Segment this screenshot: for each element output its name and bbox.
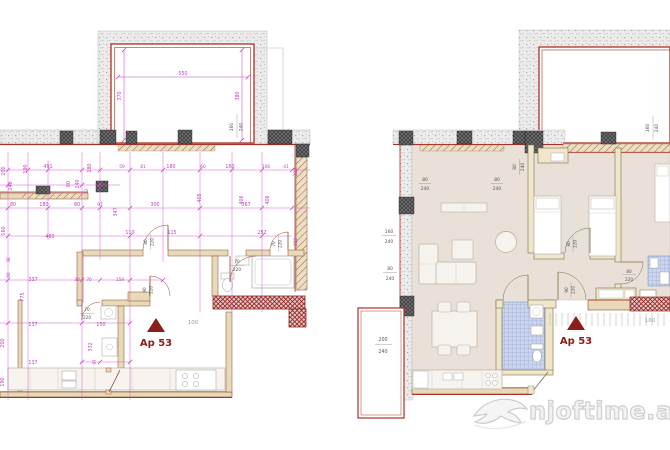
door-size-label: 80 [626,269,632,274]
size-label: 240 [654,124,660,133]
window-size-label: 240 [493,186,502,192]
stove-burner [493,381,498,386]
door-size-label: 90 [564,287,569,293]
wall-hatch [118,145,215,151]
apartment-label: Ap 53 [140,338,172,349]
interior-wall [496,300,503,308]
column [513,131,525,144]
chair [438,302,451,312]
toilet-tank [531,344,543,349]
window-size-label: 200 [378,337,387,343]
dining-table [432,311,477,347]
interior-wall [118,306,124,368]
dim-label: 159 [116,277,124,283]
pillow [657,166,668,176]
dim-label: 137 [28,360,37,366]
dim-label: 60 [6,272,11,278]
entrance-width-label: 100 [188,320,199,326]
dim-label: 332 [88,342,94,351]
dim-label: 41 [283,164,289,170]
toilet-bowl [223,279,233,292]
dim-label: 52 [84,188,89,194]
dim-label: 190 [23,164,29,173]
dim-label: 80 [10,202,16,208]
window-size-label: 240 [520,163,526,172]
interior-wall [496,370,553,375]
column [399,197,414,214]
door-size-label: 220 [150,238,155,246]
kitchen-corner-unit [413,371,428,388]
door-size-label: 70 [84,307,90,312]
dim-label: 405 [197,193,203,202]
column [268,130,292,144]
window-size-label: 240 [421,186,430,192]
dim-label: 222 [293,238,298,246]
window-size-label: 160 [385,229,394,235]
door-jamb [528,386,534,394]
dim-label: 97 [92,359,97,365]
door-size-label: 220 [83,315,91,320]
kitchen-sink [443,373,452,380]
dim-label: 223 [293,168,298,176]
wall-hatch [22,194,84,199]
parapet-hatch-red [213,296,305,309]
interior-wall [168,250,228,256]
interior-wall [77,300,82,306]
stove-burner [493,373,498,378]
kitchen-sink [62,381,76,388]
dim-label: 160 [225,164,234,170]
dim-label: 115 [167,230,176,236]
door-size-label: 220 [573,240,578,248]
sink [531,326,543,335]
dim-label: 106 [262,164,270,170]
size-label: 160 [645,124,651,133]
dim-label: 200 [1,166,7,175]
size-label: 160 [229,123,235,132]
dim-label: 775 [20,292,26,301]
window-size-label: 80 [387,266,393,272]
window-size-label: 240 [385,239,394,245]
interior-wall [212,256,218,296]
dim-label: 370 [117,91,123,100]
interior-wall [588,300,632,310]
bathtub [252,256,294,288]
interior-wall [528,145,534,253]
dim-label: 200 [0,338,6,347]
coffee-table [452,240,473,259]
door-size-label: 70 [234,259,240,264]
door-size-label: 220 [149,286,154,294]
stove-burner [486,381,491,386]
door-size-label: 70 [271,241,276,247]
column [296,144,309,157]
dim-label: 180 [166,164,175,170]
armchair [496,232,517,253]
shelf [551,153,564,161]
door-size-label: 220 [233,267,241,272]
door-size-label: 80 [143,239,148,245]
apartment-label: Ap 53 [560,336,592,347]
chair [457,345,470,355]
dim-label: 110 [125,230,134,236]
dim-label: 59 [119,164,125,170]
dim-label: 60 [200,164,206,170]
entrance-width-label: 100 [645,318,656,324]
dim-label: 97 [97,202,103,208]
dim-label: 240 [75,179,81,188]
dim-label: 300 [150,202,159,208]
dim-label: 180 [39,202,48,208]
entrance-marker-triangle [567,316,585,330]
door-size-label: 220 [625,277,633,282]
interior-wall [496,300,502,372]
exterior-wall-left [400,144,412,304]
door-swing [143,225,168,250]
shower [102,338,117,356]
wall-hatch [420,145,504,151]
dim-label: 180 [87,163,93,172]
dim-label: 160 [1,226,7,235]
interior-wall [82,250,143,256]
dim-label: 150 [96,322,105,328]
dim-label: 70 [86,277,92,282]
dim-label: 80 [74,202,80,208]
interior-wall [246,250,270,256]
size-label: 240 [239,123,245,132]
parapet-hatch-red [630,297,670,311]
column [601,132,616,144]
door-jamb [106,368,111,372]
dim-label: 190 [0,377,6,386]
dim-label: 80 [66,181,72,187]
dim-label: 491 [43,164,52,170]
column [60,131,73,144]
dim-label: 81 [140,164,146,170]
dim-label: 550 [178,71,187,77]
dim-label: 38 [6,257,11,263]
kitchen-sink [62,371,76,380]
door-size-label: 220 [278,240,283,248]
chair [457,302,470,312]
dim-label: 406 [265,195,271,204]
door-size-label: 220 [571,286,576,294]
balcony-outer-red [358,308,404,418]
window-size-label: 240 [378,349,387,355]
door-size-label: 90 [142,287,147,293]
window-size-label: 240 [386,276,395,282]
door-jamb [106,390,111,394]
exterior-wall-bottom [0,392,232,397]
window-size-label: 80 [422,177,428,183]
parapet-hatch-red [289,309,306,327]
pillow [591,198,614,209]
pillow [536,198,559,209]
closet-inner [599,290,623,298]
dim-label: 380 [235,91,241,100]
dim-label: 480 [45,234,54,240]
chair [438,345,451,355]
kitchen-sink [454,373,463,380]
door-size-label: 80 [566,241,571,247]
interior-wall [545,300,553,372]
dim-label: 252 [257,230,266,236]
floorplan-canvas: 5503703801602404915981180601601064120019… [0,0,670,450]
interior-wall [288,250,304,256]
sink [650,258,658,268]
dim-label: 30 [74,277,80,282]
toilet [660,272,669,284]
stove [176,370,216,390]
toilet-bowl [533,350,542,362]
dim-label: 347 [113,207,119,216]
column [126,131,137,144]
dim-label: 406 [239,195,245,204]
dim-label: 137 [28,322,37,328]
column [178,130,192,144]
floorplan-page: 5503703801602404915981180601601064120019… [0,0,670,450]
window-size-label: 80 [512,164,518,170]
entrance-marker-triangle [147,318,165,332]
washing-machine [101,306,116,319]
dim-label: 337 [28,277,37,283]
washing-machine [530,305,543,318]
column [457,131,472,144]
window-size-label: 80 [494,177,500,183]
column [100,130,116,144]
stove-burner [486,373,491,378]
interior-wall [226,312,232,392]
column [399,131,413,145]
dim-label: 240 [8,181,14,190]
